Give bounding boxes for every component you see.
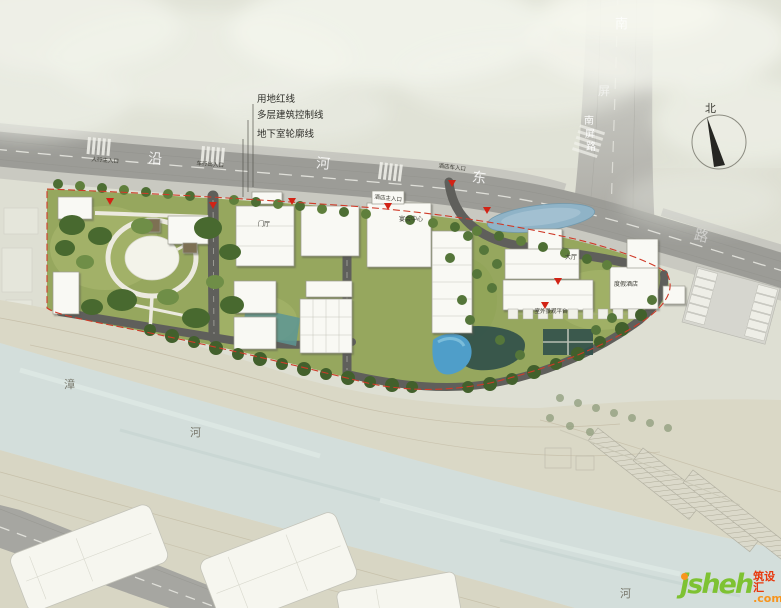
outdoor-terrace-pergola [508,309,638,319]
jsheh-watermark-logo[interactable]: jsheh 筑设汇 .com [680,570,780,606]
label-hotel-lobby: 大厅 [565,253,577,261]
logo-dot-icon [681,573,688,580]
north-label: 北 [705,102,716,115]
river-char-he: 河 [190,426,201,439]
legend-item-building-control-line: 多层建筑控制线 [257,109,324,121]
hotel-annex [663,286,685,304]
river-char-zhang: 漳 [64,377,75,391]
nanping-char-lu: 路 [586,140,596,153]
master-plan-drawing: 北 用地红线 多层建筑控制线 地下室轮廓线 沿 河 东 路 南 屏 南 屏 路 … [0,0,781,608]
retail-block-b [234,317,276,349]
nanping-char-ping: 屏 [585,128,595,140]
logo-chinese-text: 筑设汇 [753,571,781,593]
label-outdoor-terrace: 室外景观平台 [534,307,568,315]
logo-brand-text: jsheh [680,570,752,600]
retail-block-c [306,281,352,297]
label-resort-hotel: 度假酒店 [614,280,638,288]
banquet-center-building [367,203,431,267]
legend-item-basement-outline: 地下室轮廓线 [257,128,315,140]
park-building-west [53,272,79,314]
river-char-he-right: 河 [620,587,631,600]
nanping-char-faded-ping: 屏 [598,84,610,98]
label-entry-hall: 门厅 [258,220,270,228]
park-pavilion-small [183,243,197,253]
hotel-east-wing [627,239,658,268]
restaurant-building [301,206,359,256]
nanping-char-nan: 南 [584,114,594,127]
logo-tld-text: .com [753,593,781,605]
legend-item-red-line: 用地红线 [257,93,296,105]
road-char-he: 河 [315,156,330,173]
road-char-yan: 沿 [147,151,162,168]
road-char-dong: 东 [471,170,487,188]
nanping-char-faded-nan: 南 [615,16,628,32]
label-banquet-center: 宴会中心 [399,215,423,223]
entry-hall-building [236,206,294,266]
site-plan-canvas: 北 用地红线 多层建筑控制线 地下室轮廓线 沿 河 东 路 南 屏 南 屏 路 … [0,0,781,608]
